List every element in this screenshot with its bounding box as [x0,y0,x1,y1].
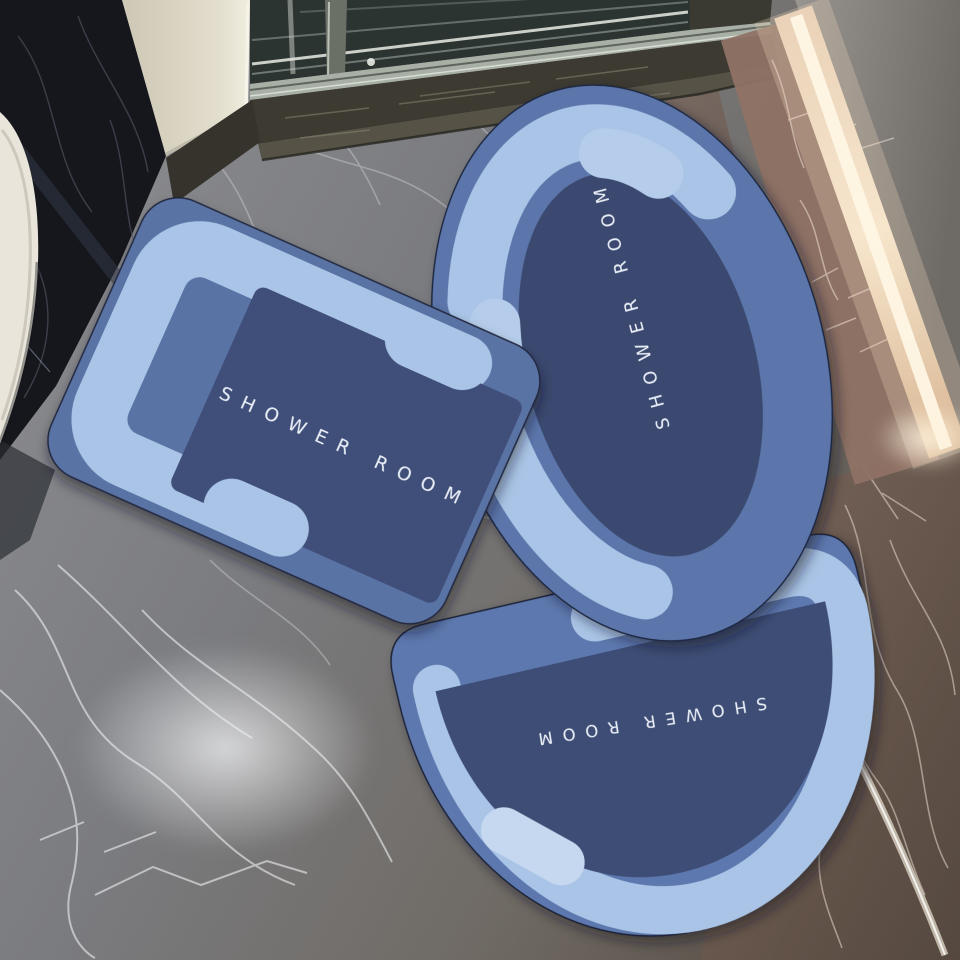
bathroom-photo: SHOWER ROOM SHOWER ROOM SHOWER ROOM [0,0,960,960]
mat-capsule-accent-top [413,340,462,362]
door-frame-highlight [328,2,329,78]
glass-vertical-streak [290,0,293,74]
glass-glint [367,58,375,66]
floor-specular-highlight [75,643,375,853]
mat-capsule-accent-top [604,141,659,186]
mat-capsule-accent-bottom [232,507,281,529]
pillar-edge-highlight [246,2,248,110]
scene-canvas: SHOWER ROOM SHOWER ROOM SHOWER ROOM [0,0,960,960]
